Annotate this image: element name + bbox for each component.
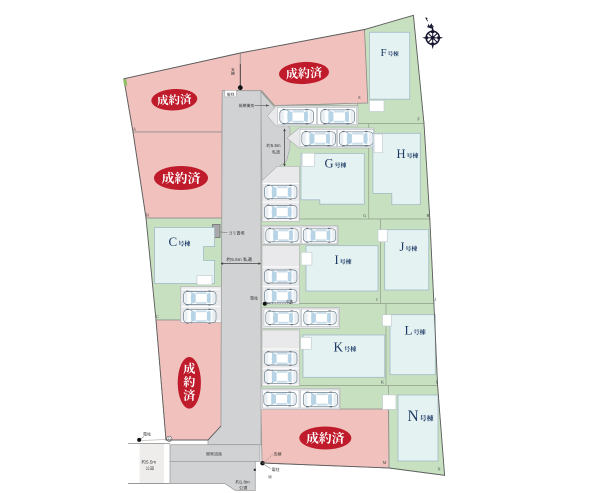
svg-text:C: C xyxy=(156,314,159,319)
svg-text:C: C xyxy=(169,234,178,249)
svg-text:D: D xyxy=(168,437,171,441)
svg-text:5.5m: 5.5m xyxy=(146,460,156,465)
svg-text:K: K xyxy=(381,380,384,385)
svg-text:N: N xyxy=(408,408,419,425)
svg-text:M: M xyxy=(383,460,387,465)
svg-text:G: G xyxy=(363,213,366,218)
svg-text:1.8m: 1.8m xyxy=(240,480,250,485)
svg-text:A: A xyxy=(133,127,136,132)
svg-text:5.5m: 5.5m xyxy=(271,143,281,148)
svg-text:K: K xyxy=(334,340,344,355)
svg-text:I: I xyxy=(335,253,339,267)
svg-text:5.5m: 5.5m xyxy=(231,257,242,262)
svg-text:G: G xyxy=(325,157,334,171)
svg-text:J: J xyxy=(434,297,436,302)
svg-text:E: E xyxy=(358,95,361,100)
svg-text:L: L xyxy=(405,323,413,338)
svg-text:F: F xyxy=(381,47,387,59)
svg-text:H: H xyxy=(397,147,406,161)
svg-text:N: N xyxy=(437,467,440,472)
svg-text:B: B xyxy=(146,213,149,218)
svg-text:J: J xyxy=(400,240,405,254)
